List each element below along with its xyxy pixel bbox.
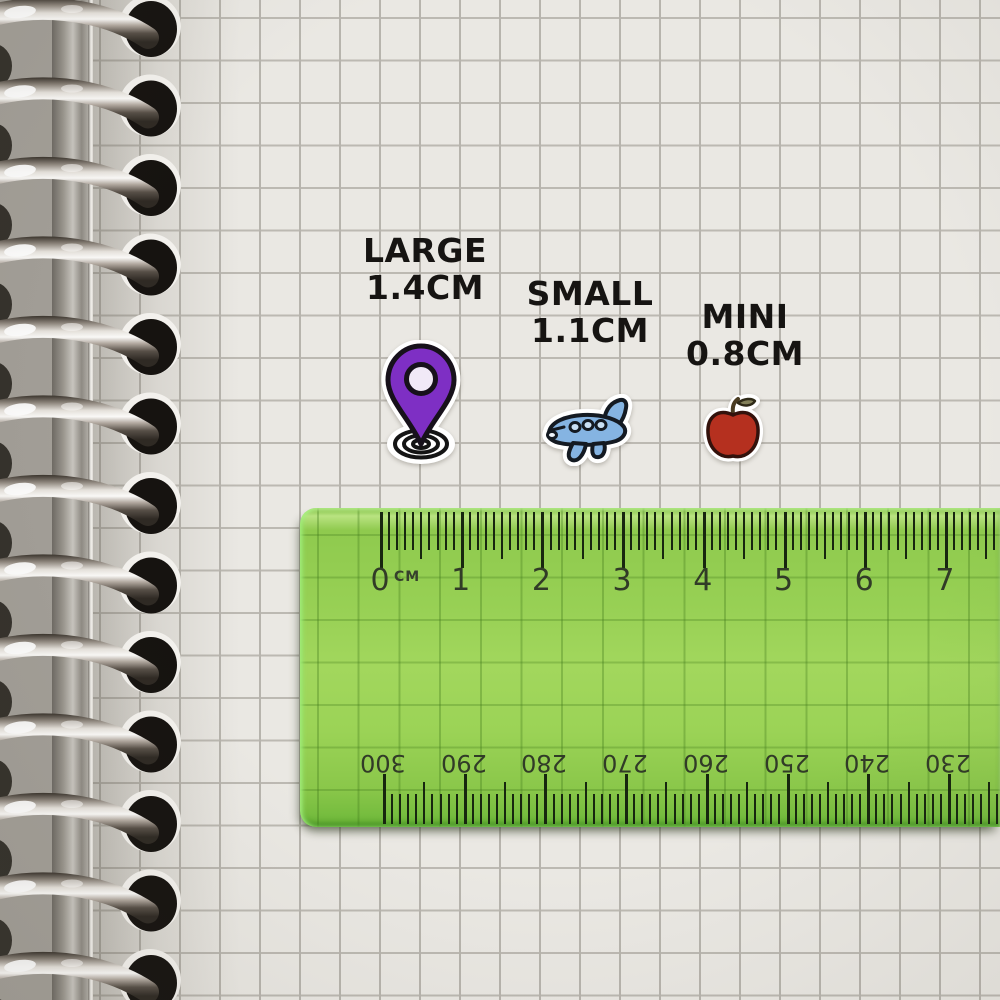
pin-hole <box>407 365 436 394</box>
ruler-tick-bottom <box>577 794 579 824</box>
ruler-tick-bottom <box>908 782 910 824</box>
ruler-tick-top <box>856 512 858 550</box>
ruler-tick-bottom <box>553 794 555 824</box>
ruler-number-bottom: 300 <box>343 751 423 775</box>
ruler-tick-bottom <box>811 794 813 824</box>
ruler-tick-top <box>380 512 383 568</box>
ruler-tick-top <box>493 512 495 550</box>
ruler-tick-top <box>824 512 826 559</box>
binding-ring <box>0 313 181 406</box>
ruler-tick-top <box>929 512 931 550</box>
ruler-tick-top <box>913 512 915 550</box>
ruler-tick-top <box>953 512 955 550</box>
ruler-tick-bottom <box>383 774 386 824</box>
binding-ring <box>0 154 181 247</box>
ruler-tick-top <box>541 512 544 568</box>
ruler-number-bottom: 270 <box>585 751 665 775</box>
ruler-number-top: 1 <box>431 566 491 596</box>
ruler-tick-bottom <box>988 782 990 824</box>
ruler-tick-top <box>816 512 818 550</box>
ruler-tick-bottom <box>843 794 845 824</box>
ruler-tick-top <box>582 512 584 559</box>
ruler-tick-bottom <box>520 794 522 824</box>
ruler-tick-bottom <box>536 794 538 824</box>
binding-ring <box>0 711 181 804</box>
ruler-tick-top <box>977 512 979 550</box>
ruler-tick-top <box>703 512 706 568</box>
ruler-tick-top <box>550 512 552 550</box>
ruler-tick-top <box>759 512 761 550</box>
ruler-tick-bottom <box>867 774 870 824</box>
binding-ring <box>0 472 181 565</box>
ruler-tick-bottom <box>448 794 450 824</box>
binding-ring <box>0 75 181 168</box>
ruler-tick-top <box>469 512 471 550</box>
ruler-tick-bottom <box>407 794 409 824</box>
ruler-tick-bottom <box>730 794 732 824</box>
size-label-large: LARGE 1.4CM <box>345 232 505 306</box>
ruler-tick-bottom <box>964 794 966 824</box>
ruler-tick-bottom <box>464 774 467 824</box>
ruler-tick-top <box>711 512 713 550</box>
ruler-tick-top <box>533 512 535 550</box>
ruler-tick-bottom <box>682 794 684 824</box>
ruler-tick-bottom <box>391 794 393 824</box>
ruler-tick-top <box>880 512 882 550</box>
ruler-tick-top <box>396 512 398 550</box>
ruler-tick-bottom <box>827 782 829 824</box>
ruler-tick-bottom <box>625 774 628 824</box>
size-value: 1.4CM <box>345 269 505 306</box>
ruler-tick-bottom <box>585 782 587 824</box>
binding-ring <box>0 949 181 1000</box>
ruler-tick-top <box>662 512 664 559</box>
ruler-tick-bottom <box>875 794 877 824</box>
size-name: SMALL <box>510 275 670 312</box>
binding-ring <box>0 393 181 486</box>
binding-ring <box>0 790 181 883</box>
ruler-tick-bottom <box>900 794 902 824</box>
ruler-tick-bottom <box>996 794 998 824</box>
ruler-tick-bottom <box>488 794 490 824</box>
ruler-tick-top <box>412 512 414 550</box>
ruler-tick-top <box>767 512 769 550</box>
ruler-tick-top <box>800 512 802 550</box>
size-name: MINI <box>665 298 825 335</box>
ruler-number-bottom: 260 <box>666 751 746 775</box>
ruler-number-bottom: 290 <box>424 751 504 775</box>
ruler-tick-top <box>614 512 616 550</box>
ruler-tick-top <box>695 512 697 550</box>
ruler-tick-top <box>461 512 464 568</box>
ruler-tick-bottom <box>480 794 482 824</box>
ruler-tick-top <box>905 512 907 559</box>
ruler-tick-bottom <box>496 794 498 824</box>
ruler-tick-bottom <box>561 794 563 824</box>
ruler-tick-bottom <box>980 794 982 824</box>
ruler-tick-bottom <box>948 774 951 824</box>
ruler-tick-top <box>388 512 390 550</box>
ruler-tick-top <box>566 512 568 550</box>
binding-ring <box>0 552 181 645</box>
ruler-tick-bottom <box>415 794 417 824</box>
ruler-number-top: 5 <box>754 566 814 596</box>
ruler-tick-bottom <box>762 794 764 824</box>
ruler-number-top: 2 <box>511 566 571 596</box>
ruler-tick-bottom <box>456 794 458 824</box>
ruler-tick-top <box>792 512 794 550</box>
ruler-number-bottom: 230 <box>908 751 988 775</box>
ruler-tick-bottom <box>609 794 611 824</box>
ruler-tick-top <box>485 512 487 550</box>
ruler-tick-bottom <box>754 794 756 824</box>
ruler-tick-bottom <box>544 774 547 824</box>
ruler-tick-bottom <box>657 794 659 824</box>
ruler-tick-bottom <box>665 782 667 824</box>
ruler-tick-bottom <box>641 794 643 824</box>
ruler-tick-bottom <box>859 794 861 824</box>
ruler-tick-top <box>969 512 971 550</box>
ruler-tick-bottom <box>431 794 433 824</box>
ruler-tick-bottom <box>770 794 772 824</box>
ruler-tick-top <box>775 512 777 550</box>
ruler-tick-top <box>993 512 995 550</box>
ruler-tick-top <box>437 512 439 550</box>
ruler: CM 01234567300290280270260250240230 <box>300 508 1000 827</box>
ruler-tick-bottom <box>738 794 740 824</box>
ruler-tick-top <box>420 512 422 559</box>
ruler-tick-bottom <box>746 782 748 824</box>
ruler-number-top: 6 <box>834 566 894 596</box>
ruler-tick-bottom <box>633 794 635 824</box>
binding-ring <box>0 870 181 963</box>
ruler-tick-top <box>404 512 406 550</box>
ruler-tick-bottom <box>472 794 474 824</box>
ruler-number-bottom: 240 <box>827 751 907 775</box>
ruler-tick-top <box>428 512 430 550</box>
spiral-binding <box>0 0 260 1000</box>
ruler-number-bottom: 280 <box>504 751 584 775</box>
ruler-tick-top <box>864 512 867 568</box>
ruler-tick-top <box>985 512 987 559</box>
ruler-tick-bottom <box>674 794 676 824</box>
ruler-tick-bottom <box>956 794 958 824</box>
ruler-tick-bottom <box>399 794 401 824</box>
ruler-tick-top <box>751 512 753 550</box>
ruler-tick-top <box>840 512 842 550</box>
ruler-tick-top <box>832 512 834 550</box>
ruler-tick-bottom <box>932 794 934 824</box>
ruler-number-top: 7 <box>915 566 975 596</box>
notebook-photo: LARGE 1.4CM SMALL 1.1CM MINI 0.8CM <box>0 0 1000 1000</box>
ruler-tick-top <box>937 512 939 550</box>
ruler-tick-bottom <box>972 794 974 824</box>
ruler-tick-bottom <box>916 794 918 824</box>
ruler-tick-top <box>872 512 874 550</box>
ruler-tick-bottom <box>722 794 724 824</box>
ruler-tick-top <box>743 512 745 559</box>
ruler-tick-top <box>719 512 721 550</box>
ruler-number-top: 0 <box>350 566 410 596</box>
size-label-small: SMALL 1.1CM <box>510 275 670 349</box>
ruler-tick-bottom <box>924 794 926 824</box>
ruler-tick-bottom <box>835 794 837 824</box>
ruler-tick-bottom <box>819 794 821 824</box>
ruler-tick-top <box>897 512 899 550</box>
ruler-tick-top <box>525 512 527 550</box>
ruler-tick-bottom <box>714 794 716 824</box>
ruler-tick-bottom <box>851 794 853 824</box>
ruler-tick-top <box>888 512 890 550</box>
binding-ring <box>0 234 181 327</box>
ruler-tick-top <box>646 512 648 550</box>
ruler-tick-bottom <box>601 794 603 824</box>
ruler-tick-top <box>921 512 923 550</box>
ruler-tick-top <box>622 512 625 568</box>
binding-ring <box>0 631 181 724</box>
ruler-tick-bottom <box>787 774 790 824</box>
ruler-tick-top <box>679 512 681 550</box>
ruler-tick-top <box>727 512 729 550</box>
ruler-number-bottom: 250 <box>747 751 827 775</box>
location-pin-sticker <box>377 340 465 468</box>
ruler-tick-bottom <box>778 794 780 824</box>
ruler-tick-top <box>945 512 948 568</box>
ruler-tick-top <box>630 512 632 550</box>
ruler-tick-top <box>687 512 689 550</box>
ruler-tick-bottom <box>795 794 797 824</box>
ruler-tick-bottom <box>569 794 571 824</box>
ruler-tick-bottom <box>512 794 514 824</box>
ruler-tick-top <box>501 512 503 559</box>
ruler-tick-bottom <box>528 794 530 824</box>
ruler-tick-bottom <box>940 794 942 824</box>
ruler-tick-top <box>509 512 511 550</box>
ruler-tick-bottom <box>698 794 700 824</box>
ruler-tick-bottom <box>423 782 425 824</box>
ruler-tick-top <box>477 512 479 550</box>
ruler-number-top: 3 <box>592 566 652 596</box>
size-value: 1.1CM <box>510 312 670 349</box>
ruler-tick-top <box>453 512 455 550</box>
ruler-tick-top <box>606 512 608 550</box>
ruler-tick-top <box>598 512 600 550</box>
ruler-tick-top <box>517 512 519 550</box>
ruler-tick-top <box>638 512 640 550</box>
size-name: LARGE <box>345 232 505 269</box>
ruler-tick-top <box>654 512 656 550</box>
ruler-tick-bottom <box>891 794 893 824</box>
ruler-tick-top <box>784 512 787 568</box>
ruler-tick-bottom <box>617 794 619 824</box>
size-label-mini: MINI 0.8CM <box>665 298 825 372</box>
ruler-tick-top <box>735 512 737 550</box>
ruler-tick-top <box>558 512 560 550</box>
ruler-tick-top <box>590 512 592 550</box>
ruler-tick-bottom <box>649 794 651 824</box>
ruler-tick-top <box>848 512 850 550</box>
apple-sticker <box>700 393 766 465</box>
size-value: 0.8CM <box>665 335 825 372</box>
ruler-tick-bottom <box>706 774 709 824</box>
ruler-tick-top <box>961 512 963 550</box>
ruler-tick-bottom <box>504 782 506 824</box>
ruler-tick-top <box>574 512 576 550</box>
ruler-tick-bottom <box>803 794 805 824</box>
ruler-tick-top <box>808 512 810 550</box>
airplane-sticker <box>540 394 638 466</box>
ruler-tick-bottom <box>883 794 885 824</box>
ruler-tick-bottom <box>690 794 692 824</box>
ruler-tick-bottom <box>440 794 442 824</box>
ruler-tick-top <box>445 512 447 550</box>
ruler-number-top: 4 <box>673 566 733 596</box>
ruler-tick-bottom <box>593 794 595 824</box>
ruler-tick-top <box>671 512 673 550</box>
